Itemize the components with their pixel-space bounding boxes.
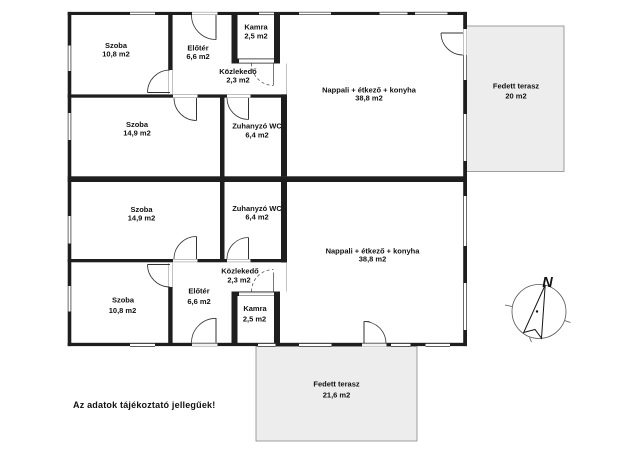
svg-text:Előtér: Előtér (188, 287, 209, 296)
svg-text:Zuhanyzó WC: Zuhanyzó WC (232, 122, 282, 131)
svg-text:6,6 m2: 6,6 m2 (186, 52, 209, 61)
svg-text:Fedett terasz: Fedett terasz (313, 380, 360, 389)
svg-text:14,9 m2: 14,9 m2 (123, 129, 151, 138)
svg-text:2,5 m2: 2,5 m2 (244, 32, 267, 41)
svg-text:38,8 m2: 38,8 m2 (355, 94, 383, 103)
svg-text:20 m2: 20 m2 (505, 92, 526, 101)
svg-text:10,8 m2: 10,8 m2 (109, 306, 137, 315)
svg-text:6,4 m2: 6,4 m2 (245, 213, 268, 222)
svg-text:Az adatok tájékoztató jellegűe: Az adatok tájékoztató jellegűek! (73, 400, 215, 410)
svg-text:Közlekedő: Közlekedő (221, 267, 259, 276)
svg-text:6,6 m2: 6,6 m2 (187, 297, 210, 306)
svg-text:10,8 m2: 10,8 m2 (102, 50, 130, 59)
svg-text:21,6 m2: 21,6 m2 (323, 391, 351, 400)
svg-text:6,4 m2: 6,4 m2 (245, 131, 268, 140)
svg-text:Szoba: Szoba (112, 296, 135, 305)
svg-text:14,9 m2: 14,9 m2 (128, 214, 156, 223)
svg-text:2,3 m2: 2,3 m2 (227, 276, 250, 285)
svg-text:Fedett terasz: Fedett terasz (493, 82, 540, 91)
svg-text:2,3 m2: 2,3 m2 (226, 76, 249, 85)
svg-text:Kamra: Kamra (244, 23, 268, 32)
svg-text:2,5 m2: 2,5 m2 (243, 315, 266, 324)
svg-text:38,8 m2: 38,8 m2 (359, 255, 387, 264)
svg-text:Kamra: Kamra (243, 304, 267, 313)
